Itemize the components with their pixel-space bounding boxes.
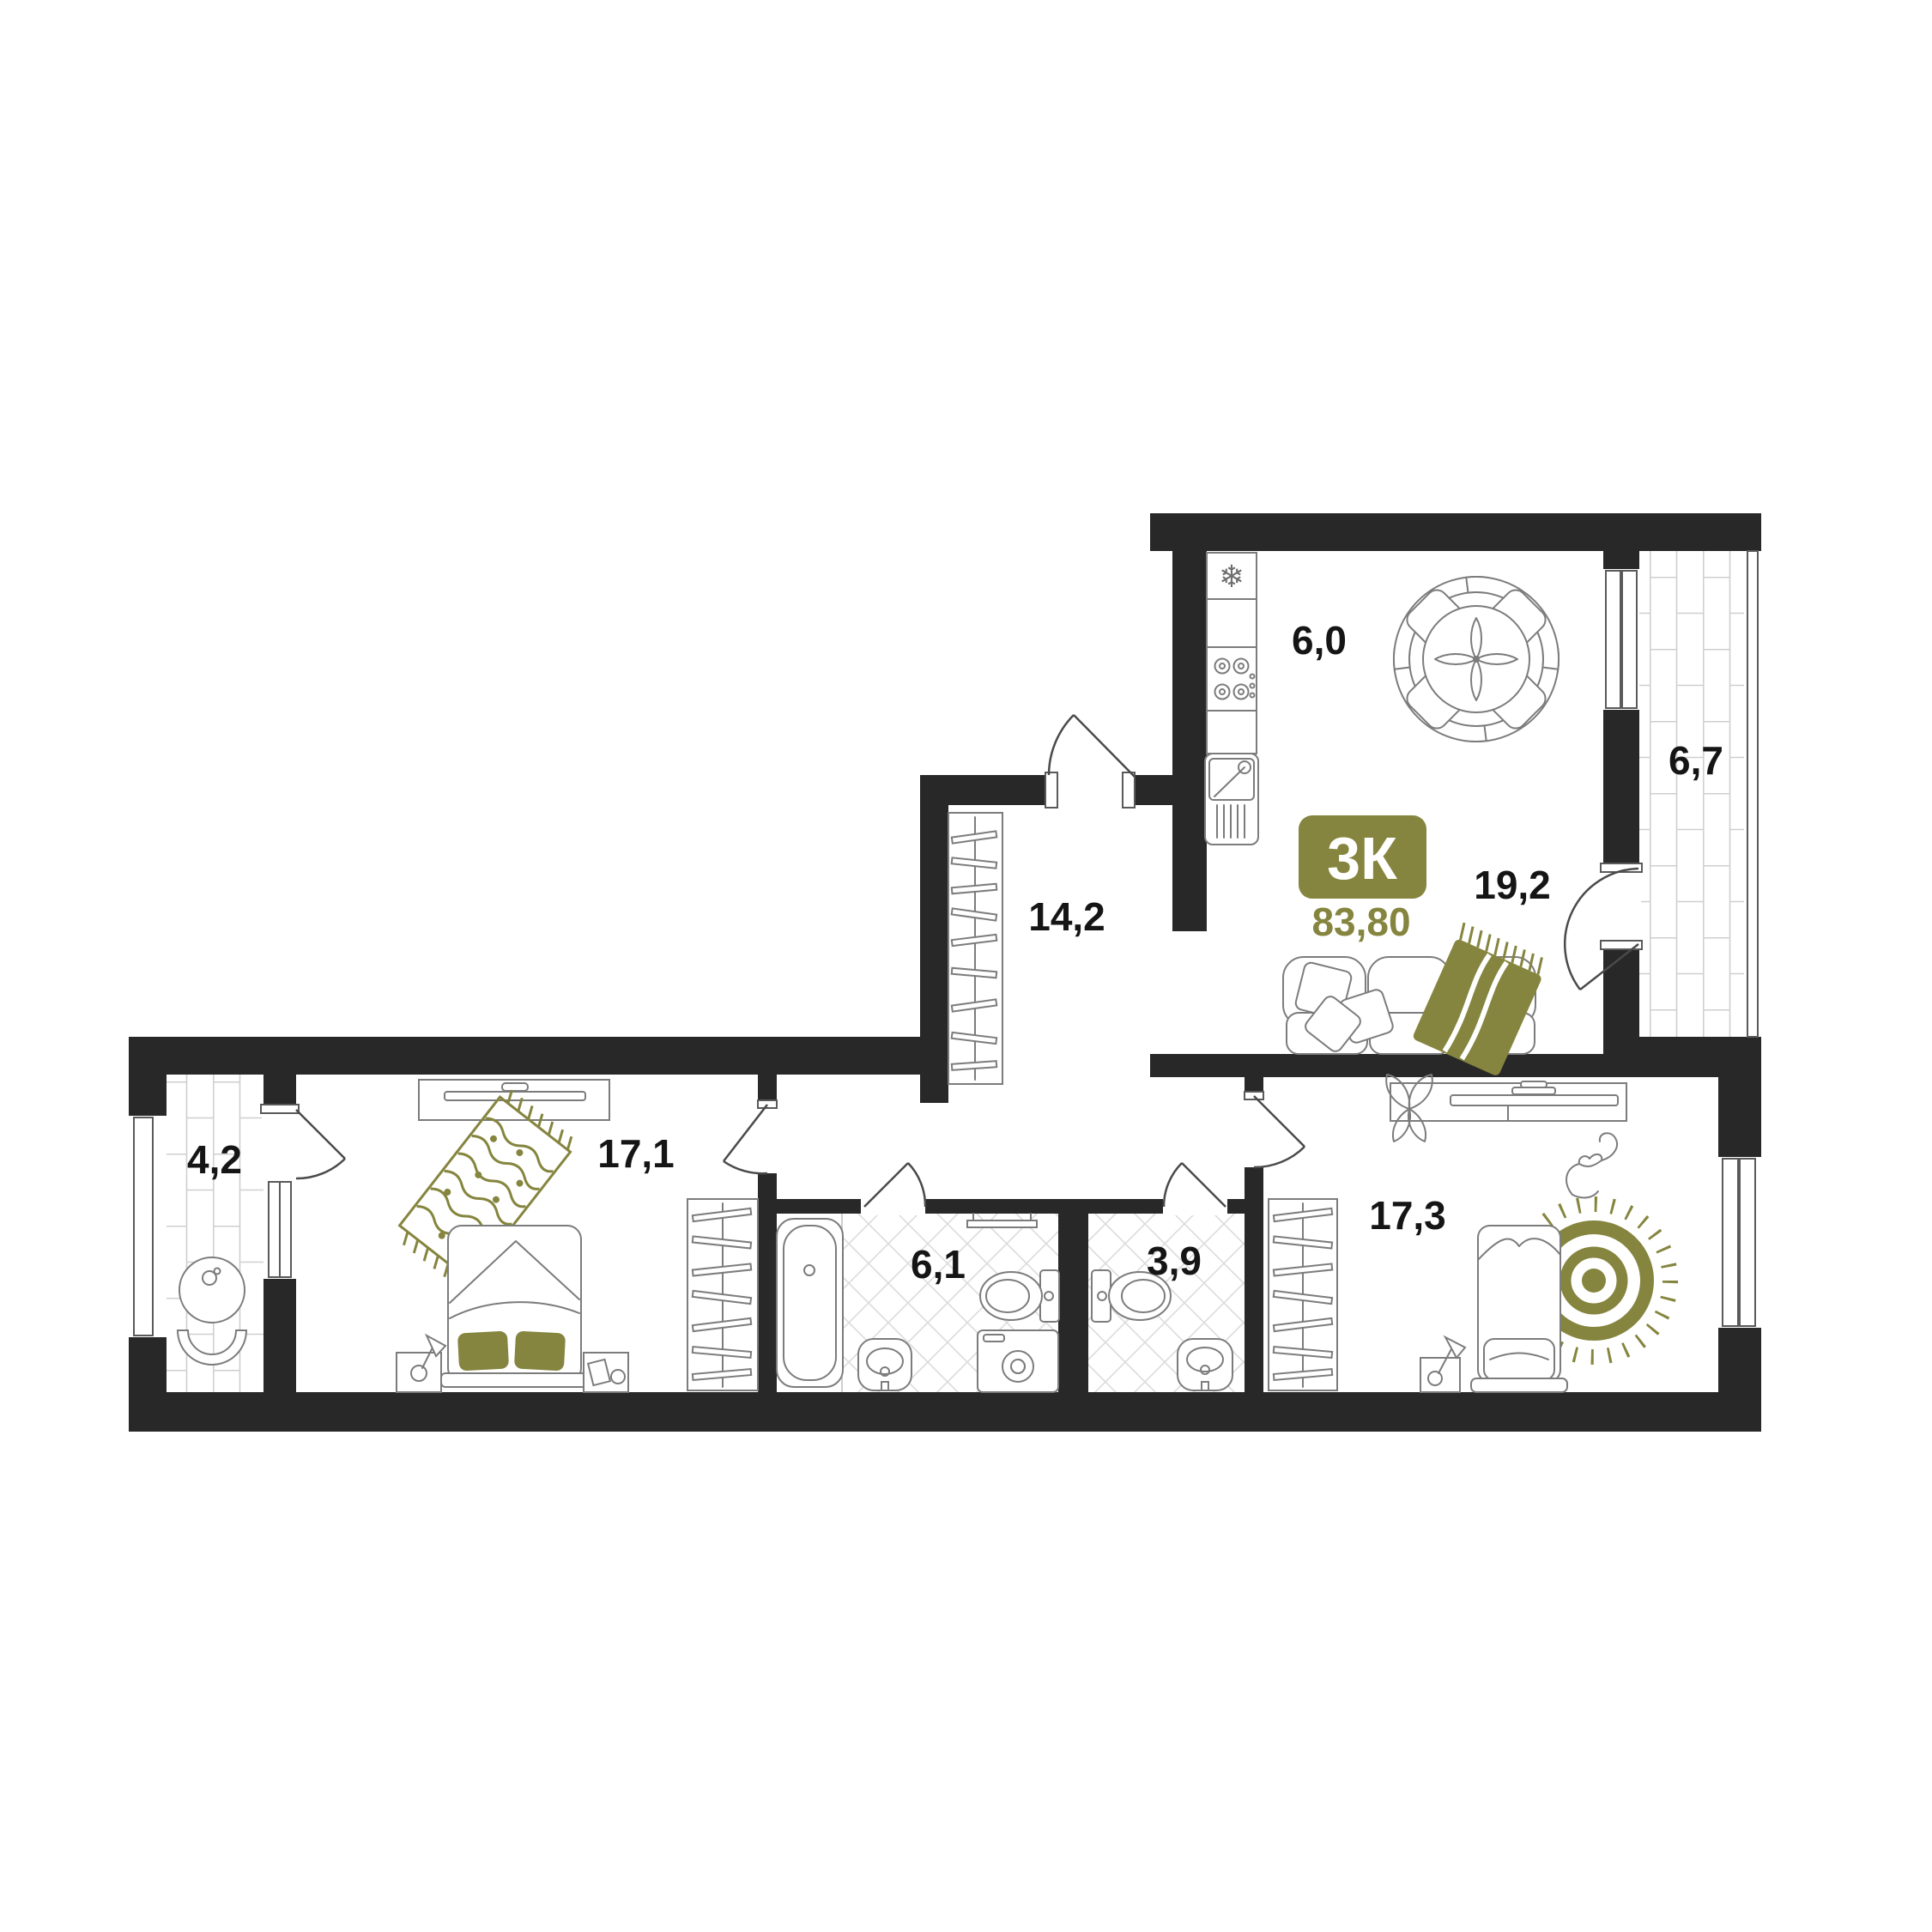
loggia-left-area-label: 4,2 [187, 1137, 242, 1182]
stove [1207, 647, 1257, 711]
bedroom-right-wardrobe [1269, 1199, 1337, 1390]
hallway-area-label: 14,2 [1028, 894, 1105, 939]
loggia-right-glazing [1747, 551, 1758, 1037]
dining-set [1394, 577, 1559, 742]
bedroom-right-furniture [1269, 1075, 1670, 1392]
bathroom-door [861, 1163, 925, 1215]
loggia-right-floor [1639, 551, 1744, 1037]
bedroom-left-furniture [391, 1080, 758, 1392]
pillow [514, 1331, 566, 1372]
badge-total-area-label: 83,80 [1311, 899, 1410, 944]
floorplan: ❄ [0, 0, 1932, 1932]
kitchen-cabinet [1207, 711, 1257, 754]
apartment-badge: 3К 83,80 [1299, 815, 1426, 944]
double-bed [441, 1226, 588, 1387]
dresser [419, 1080, 609, 1120]
cat-figure [1566, 1133, 1617, 1197]
pillow [457, 1331, 509, 1372]
washing-machine [978, 1330, 1058, 1392]
bathroom-area-label: 6,1 [911, 1242, 966, 1287]
hallway-wardrobe [948, 813, 1002, 1084]
bathtub [777, 1219, 843, 1387]
bedroom-left-wardrobe [687, 1199, 758, 1390]
balcony-door-bedroom-left [261, 1105, 345, 1180]
bedroom-left-area-label: 17,1 [597, 1131, 675, 1176]
sofa [1283, 923, 1550, 1077]
nightstand-lamp [397, 1335, 445, 1392]
wc-door [1163, 1163, 1227, 1215]
wc-area-label: 3,9 [1147, 1239, 1202, 1283]
floorplan-canvas: ❄ [0, 0, 1932, 1932]
entrance-door [1045, 715, 1135, 808]
tv-shelf [1390, 1081, 1626, 1121]
kitchen-cabinet [1207, 599, 1257, 647]
snowflake-icon: ❄ [1219, 560, 1245, 595]
cafe-table [179, 1257, 245, 1323]
bedroom-right-door [1243, 1092, 1305, 1167]
loggia-right-area-label: 6,7 [1669, 738, 1723, 783]
bedroom-right-area-label: 17,3 [1369, 1193, 1446, 1238]
kitchen-area-label: 6,0 [1292, 618, 1347, 663]
kitchen-sink [1205, 754, 1258, 845]
living-area-label: 19,2 [1474, 863, 1551, 907]
toilet [980, 1270, 1059, 1322]
tv [1451, 1095, 1618, 1105]
bedroom-left-door [724, 1100, 778, 1173]
nightstand-lamp [1420, 1337, 1465, 1392]
pillow [1484, 1339, 1554, 1380]
nightstand [584, 1353, 628, 1392]
sink-pedestal [858, 1339, 911, 1390]
kitchen-counter: ❄ [1205, 553, 1258, 845]
single-bed [1471, 1226, 1567, 1392]
sink-pedestal [1178, 1339, 1232, 1390]
badge-type-label: 3К [1327, 825, 1397, 892]
